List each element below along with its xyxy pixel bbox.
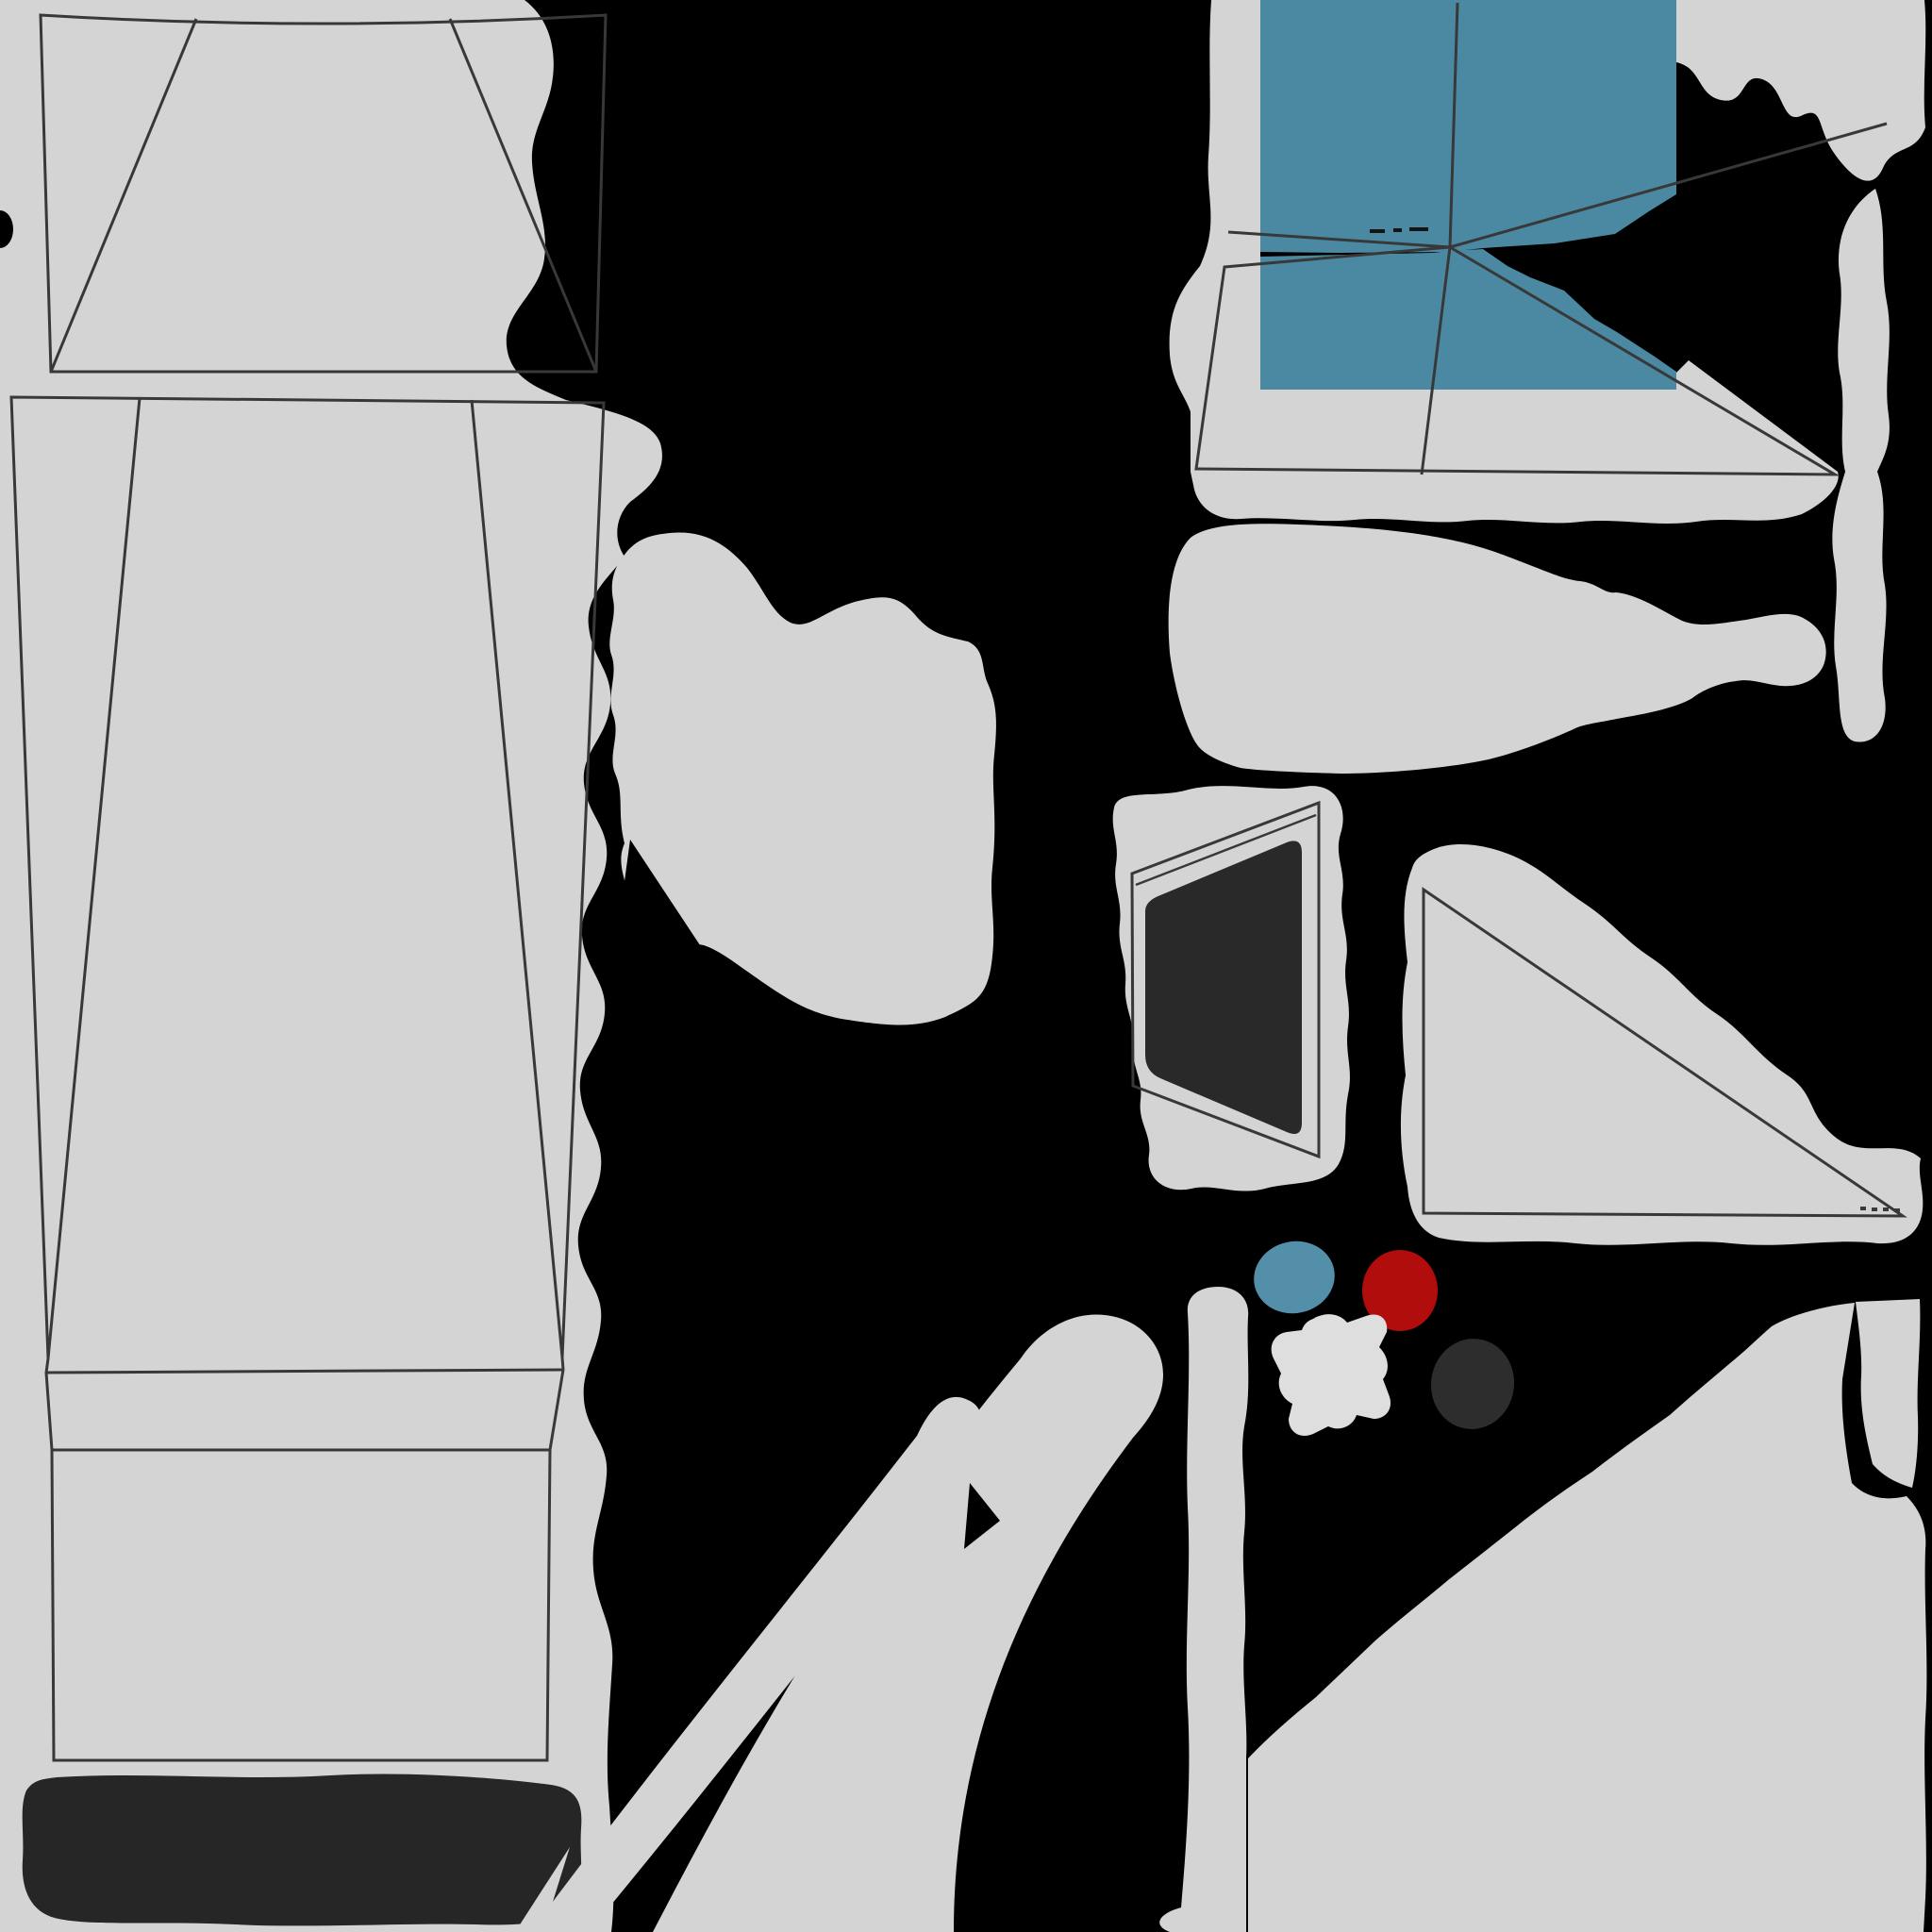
blob-bottom-column (1159, 1287, 1248, 1932)
triangle-dot-2 (1872, 1207, 1877, 1211)
bumper-black-bar (23, 1774, 582, 1926)
glass-lower-blue (1260, 249, 1676, 390)
blob-middle-cluster (609, 533, 996, 1025)
texture-atlas (0, 0, 1932, 1932)
glass-upper-blue (1260, 0, 1676, 253)
paint-dot-blue (1247, 1234, 1341, 1321)
paint-dot-dark (1425, 1333, 1521, 1434)
glass-dash-3 (1409, 227, 1428, 231)
glass-dash-2 (1393, 228, 1402, 232)
triangle-dot-3 (1883, 1207, 1889, 1211)
triangle-dot-4 (1894, 1208, 1900, 1212)
blob-cab-top-band (1676, 0, 1925, 181)
blob-side-triangle (1401, 844, 1923, 1245)
sprocket-blob (1272, 1314, 1391, 1436)
blob-cab-right-column (1832, 189, 1890, 742)
texture-atlas-page (0, 0, 1932, 1932)
triangle-dot-1 (1860, 1207, 1866, 1210)
glass-dash-1 (1370, 229, 1385, 233)
blob-bottom-right-finger (1856, 1299, 1920, 1488)
blob-strip-b (653, 1314, 1163, 1932)
blob-bottle-shape (1169, 524, 1826, 774)
